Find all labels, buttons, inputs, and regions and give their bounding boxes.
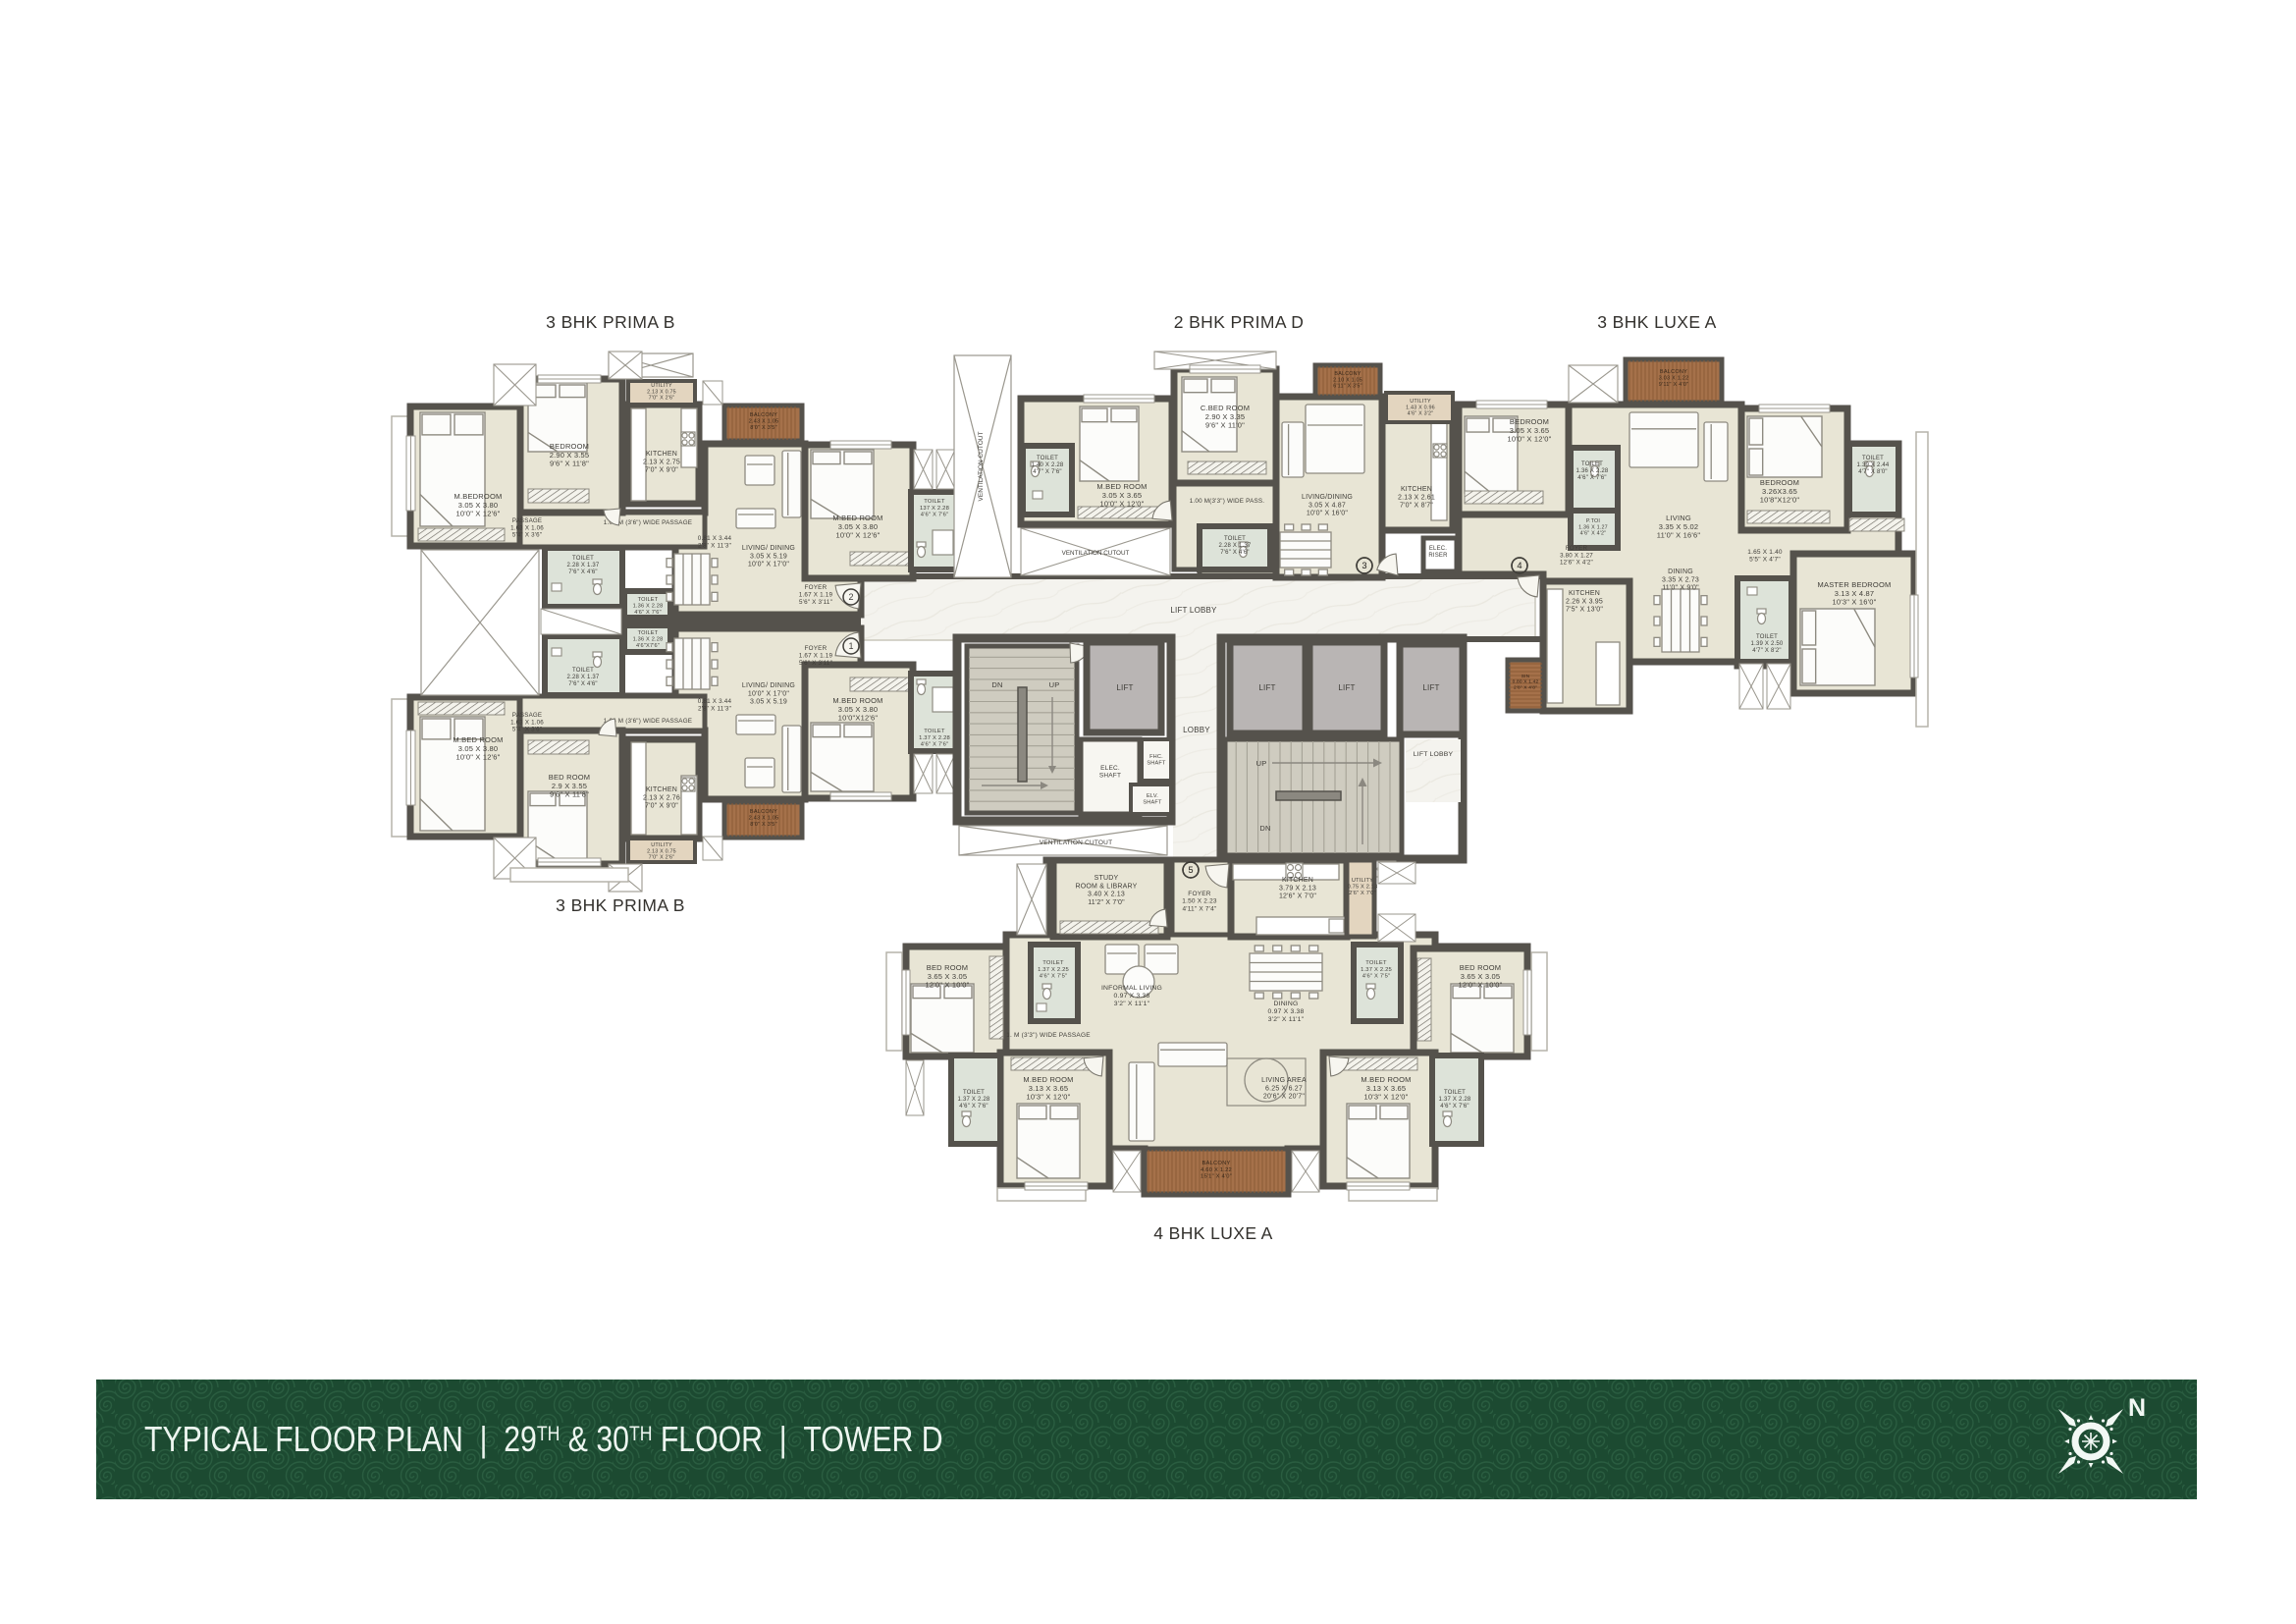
svg-text:C.BED ROOM2.90 X 3.359'6" X 11: C.BED ROOM2.90 X 3.359'6" X 11'0" [1201,404,1250,430]
svg-text:1: 1 [848,641,853,651]
svg-text:BALCONY3.03 X 1.229'11" X 4'0": BALCONY3.03 X 1.229'11" X 4'0" [1659,369,1689,388]
svg-text:KITCHEN2.26 X 3.957'5" X 13'0": KITCHEN2.26 X 3.957'5" X 13'0" [1566,590,1603,614]
svg-text:KITCHEN2.13 X 2.767'0" X 9'0": KITCHEN2.13 X 2.767'0" X 9'0" [643,786,680,810]
svg-text:UTILITY2.13 X 0.757'0" X 2'6": UTILITY2.13 X 0.757'0" X 2'6" [647,383,676,402]
svg-text:LIVING AREA6.25 X 6.2720'6" X: LIVING AREA6.25 X 6.2720'6" X 20'7" [1261,1077,1307,1101]
svg-text:UTILITY2.13 X 0.757'0" X 2'6": UTILITY2.13 X 0.757'0" X 2'6" [647,842,676,861]
svg-text:2 BHK PRIMA D: 2 BHK PRIMA D [1174,312,1305,332]
svg-text:BALCONY2.43 X 1.058'0" X 3'5": BALCONY2.43 X 1.058'0" X 3'5" [749,809,779,828]
svg-text:1.65 X 1.405'5" X 4'7": 1.65 X 1.405'5" X 4'7" [1747,549,1783,564]
svg-text:LIVING/ DINING10'0" X 17'0"3.0: LIVING/ DINING10'0" X 17'0"3.05 X 5.19 [742,682,795,706]
svg-text:M.BED ROOM3.05 X 3.6510'0" X 1: M.BED ROOM3.05 X 3.6510'0" X 12'0" [1096,482,1147,509]
svg-text:LIFT: LIFT [1422,683,1439,692]
svg-text:0.81 X 3.442'8" X 11'3": 0.81 X 3.442'8" X 11'3" [698,535,732,549]
svg-text:1.00 M(3'3") WIDE PASS.: 1.00 M(3'3") WIDE PASS. [1190,498,1265,505]
svg-text:M.BED ROOM3.05 X 3.8010'0" X 1: M.BED ROOM3.05 X 3.8010'0" X 12'6" [832,514,882,540]
svg-text:VENTILATION CUTOUT: VENTILATION CUTOUT [978,432,985,502]
svg-text:LIVING/ DINING3.05 X 5.1910'0": LIVING/ DINING3.05 X 5.1910'0" X 17'0" [742,545,795,568]
svg-text:M.BED ROOM3.05 X 3.8010'0"X12': M.BED ROOM3.05 X 3.8010'0"X12'6" [832,696,882,723]
svg-text:ELEC.SHAFT: ELEC.SHAFT [1099,765,1121,780]
svg-text:PASSAGE1.63 X 1.065'4" X 3'6": PASSAGE1.63 X 1.065'4" X 3'6" [510,712,544,733]
svg-text:VENTILATION CUTOUT: VENTILATION CUTOUT [1062,550,1130,557]
svg-text:1. M (3'3") WIDE PASSAGE: 1. M (3'3") WIDE PASSAGE [1006,1032,1091,1039]
svg-text:1.06 M (3'6") WIDE PASSAGE: 1.06 M (3'6") WIDE PASSAGE [604,718,692,725]
svg-text:UTILITY1.43 X 0.964'6" X 3'2": UTILITY1.43 X 0.964'6" X 3'2" [1406,399,1435,417]
svg-text:UTILITY0.75 X 2.132'6" X 7'0": UTILITY0.75 X 2.132'6" X 7'0" [1348,878,1378,896]
svg-text:DN: DN [991,680,1002,689]
svg-text:0.81 X 3.442'8" X 11'3": 0.81 X 3.442'8" X 11'3" [698,698,732,712]
svg-text:TOILET137 X 2.284'6" X 7'6": TOILET137 X 2.284'6" X 7'6" [920,499,949,518]
svg-text:M.BED ROOM3.13 X 3.6510'3" X 1: M.BED ROOM3.13 X 3.6510'3" X 12'0" [1023,1075,1073,1102]
svg-text:4 BHK LUXE A: 4 BHK LUXE A [1153,1223,1273,1243]
svg-text:BEDROOM2.90 X 3.559'6" X 11'8": BEDROOM2.90 X 3.559'6" X 11'8" [550,442,590,468]
svg-text:BED ROOM2.9 X 3.559'6" X 11'8": BED ROOM2.9 X 3.559'6" X 11'8" [549,773,590,799]
svg-text:BEDROOM3.26X3.6510'8"X12'0": BEDROOM3.26X3.6510'8"X12'0" [1760,478,1800,505]
svg-text:UP: UP [1256,759,1267,768]
svg-text:BED ROOM3.65 X 3.0512'0" X 10': BED ROOM3.65 X 3.0512'0" X 10'0" [926,963,970,990]
svg-text:BED ROOM3.65 X 3.0512'0" X 10': BED ROOM3.65 X 3.0512'0" X 10'0" [1459,963,1503,990]
svg-text:ELEC.RISER: ELEC.RISER [1428,546,1448,559]
svg-text:BALCONY4.60 X 1.2215'1" X 4'0": BALCONY4.60 X 1.2215'1" X 4'0" [1201,1161,1232,1180]
svg-text:BALCONY2.10 X 1.056'11" X 3'5": BALCONY2.10 X 1.056'11" X 3'5" [1333,371,1362,390]
svg-text:BALCONY2.43 X 1.058'0" X 3'5": BALCONY2.43 X 1.058'0" X 3'5" [749,412,779,431]
svg-text:UP: UP [1049,680,1060,689]
svg-text:N: N [2128,1394,2146,1422]
svg-text:5: 5 [1188,865,1193,875]
svg-text:3 BHK PRIMA B: 3 BHK PRIMA B [546,312,675,332]
svg-text:BEDROOM3.05 X 3.6510'0" X 12'0: BEDROOM3.05 X 3.6510'0" X 12'0" [1508,417,1552,444]
svg-text:M.BED ROOM3.05 X 3.8010'0" X 1: M.BED ROOM3.05 X 3.8010'0" X 12'6" [453,735,503,762]
svg-text:DN: DN [1259,824,1270,833]
svg-text:LIFT LOBBY: LIFT LOBBY [1170,606,1217,615]
svg-text:M.BED ROOM3.13 X 3.6510'3" X 1: M.BED ROOM3.13 X 3.6510'3" X 12'0" [1361,1075,1411,1102]
svg-text:3 BHK LUXE A: 3 BHK LUXE A [1597,312,1717,332]
svg-text:3 BHK PRIMA B: 3 BHK PRIMA B [556,895,685,915]
svg-text:LIFT: LIFT [1258,683,1275,692]
svg-text:KITCHEN2.13 X 2.757'0" X 9'0": KITCHEN2.13 X 2.757'0" X 9'0" [643,451,680,474]
svg-text:LIFT: LIFT [1338,683,1355,692]
svg-text:LIFT: LIFT [1116,683,1133,692]
svg-text:LIFT LOBBY: LIFT LOBBY [1414,751,1454,758]
svg-text:4: 4 [1517,561,1522,570]
svg-text:3: 3 [1362,561,1366,570]
svg-text:VENTILATION CUTOUT: VENTILATION CUTOUT [1040,839,1113,846]
svg-text:LOBBY: LOBBY [1183,726,1210,734]
svg-text:PASSAGE1.63 X 1.065'4" X 3'6": PASSAGE1.63 X 1.065'4" X 3'6" [510,517,544,539]
svg-text:2: 2 [848,592,853,602]
svg-text:KITCHEN2.13 X 2.617'0" X 8'7": KITCHEN2.13 X 2.617'0" X 8'7" [1398,486,1435,510]
svg-text:KITCHEN3.79 X 2.1312'6" X 7'0": KITCHEN3.79 X 2.1312'6" X 7'0" [1279,877,1316,900]
svg-text:M.BEDROOM3.05 X 3.8010'0" X 12: M.BEDROOM3.05 X 3.8010'0" X 12'6" [454,492,503,518]
svg-text:LIVING/DINING3.05 X 4.8710'0": LIVING/DINING3.05 X 4.8710'0" X 16'0" [1302,494,1353,517]
